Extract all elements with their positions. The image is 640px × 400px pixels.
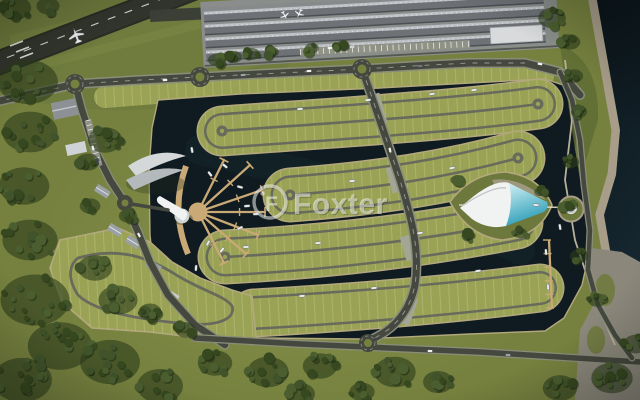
watermark-text: Foxter (293, 188, 388, 221)
masterplan-canvas: F Foxter Foxter (0, 0, 640, 400)
aerial-render: F Foxter Foxter (0, 0, 640, 400)
logo-glyph: F (265, 193, 278, 216)
